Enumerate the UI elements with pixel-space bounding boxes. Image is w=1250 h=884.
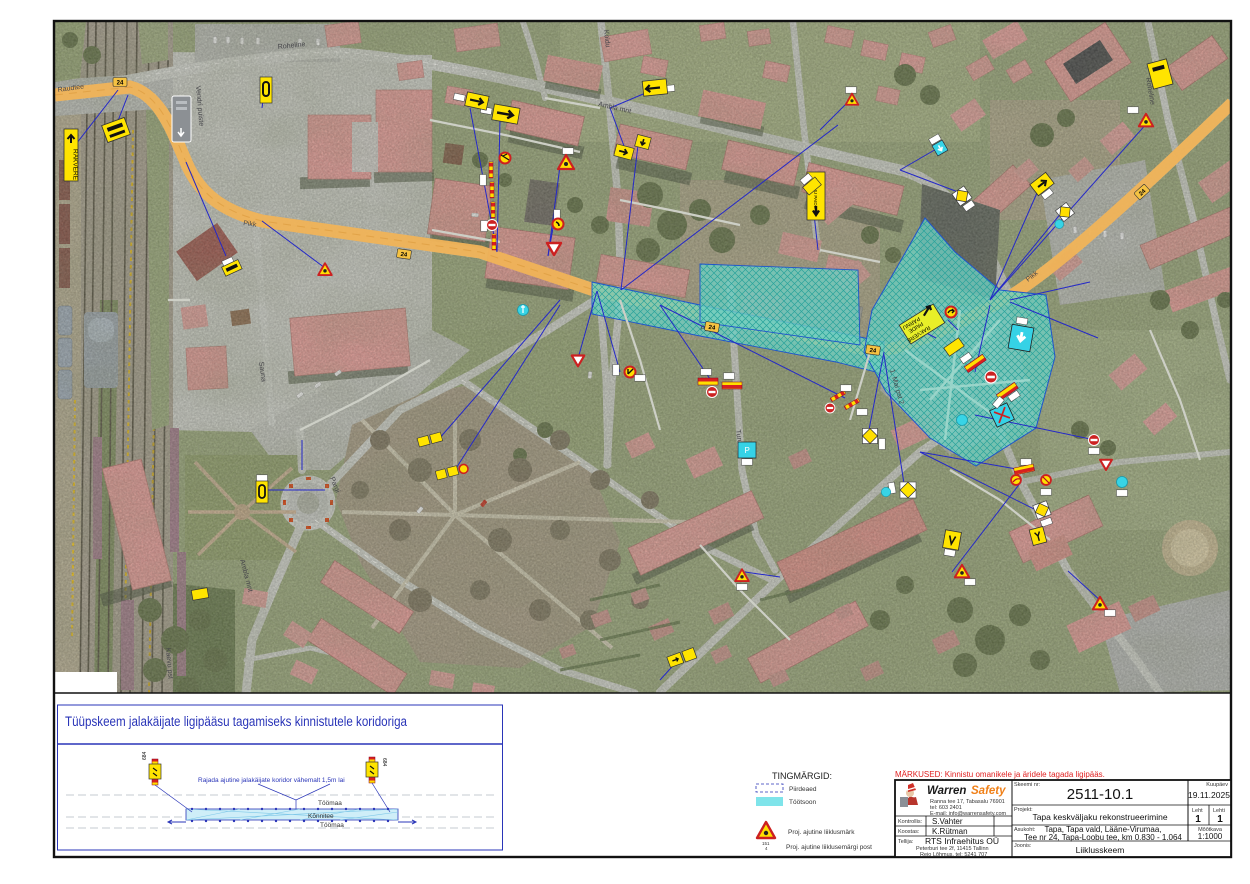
svg-text:Kõnnitee: Kõnnitee (308, 813, 334, 820)
svg-text:Töömaa: Töömaa (320, 822, 344, 829)
svg-text:Tee nr 24, Tapa-Loobu tee, km: Tee nr 24, Tapa-Loobu tee, km 0.830 - 1.… (1024, 833, 1182, 842)
svg-text:RTS Infraehitus OÜ: RTS Infraehitus OÜ (925, 836, 999, 846)
svg-text:MÄRKUSED: Kinnistu omanikele j: MÄRKUSED: Kinnistu omanikele ja äridele … (895, 770, 1105, 779)
svg-text:P: P (745, 446, 750, 455)
svg-text:Skeemi nr:: Skeemi nr: (1014, 782, 1041, 788)
svg-text:Tüüpskeem jalakäijate ligipääs: Tüüpskeem jalakäijate ligipääsu tagamise… (65, 714, 407, 729)
svg-text:Töötsoon: Töötsoon (789, 799, 816, 806)
svg-text:Warren: Warren (927, 785, 966, 797)
svg-text:2511-10.1: 2511-10.1 (1067, 786, 1133, 803)
svg-text:Tapa keskväljaku rekonstrueeri: Tapa keskväljaku rekonstrueerimine (1032, 812, 1167, 822)
svg-text:Kontrollis:: Kontrollis: (898, 819, 923, 825)
svg-text:19.11.2025: 19.11.2025 (1188, 790, 1230, 800)
svg-text:684: 684 (142, 751, 148, 760)
svg-text:K.Rütman: K.Rütman (932, 827, 968, 836)
svg-text:Joonis:: Joonis: (1014, 843, 1032, 849)
svg-text:Tellija:: Tellija: (898, 839, 914, 845)
svg-text:Safety: Safety (971, 785, 1006, 797)
svg-text:TINGMÄRGID:: TINGMÄRGID: (772, 771, 832, 781)
svg-text:24: 24 (117, 80, 124, 86)
svg-text:S.Vahter: S.Vahter (932, 817, 963, 826)
svg-text:Reio Lõhmus, tel: 5241 707: Reio Lõhmus, tel: 5241 707 (920, 852, 987, 858)
svg-text:1: 1 (1217, 814, 1223, 825)
svg-text:RAKVERE: RAKVERE (72, 149, 79, 181)
svg-text:Rajada ajutine jalakäijate kor: Rajada ajutine jalakäijate koridor vähem… (198, 777, 345, 784)
svg-text:Proj. ajutine liiklusmärk: Proj. ajutine liiklusmärk (788, 829, 855, 836)
svg-text:Projekt:: Projekt: (1014, 807, 1033, 813)
svg-text:Kuupäev: Kuupäev (1206, 782, 1228, 788)
svg-text:Töömaa: Töömaa (318, 800, 342, 807)
svg-text:1: 1 (1195, 814, 1201, 825)
svg-text:Proj. ajutine liiklusemärgi po: Proj. ajutine liiklusemärgi post (786, 844, 872, 851)
svg-text:Piirdeaed: Piirdeaed (789, 786, 817, 793)
svg-text:684: 684 (381, 758, 387, 767)
svg-text:Liiklusskeem: Liiklusskeem (1076, 845, 1125, 855)
svg-text:Koostas:: Koostas: (898, 829, 920, 835)
svg-text:1:1000: 1:1000 (1198, 832, 1223, 841)
svg-text:4: 4 (765, 846, 768, 851)
